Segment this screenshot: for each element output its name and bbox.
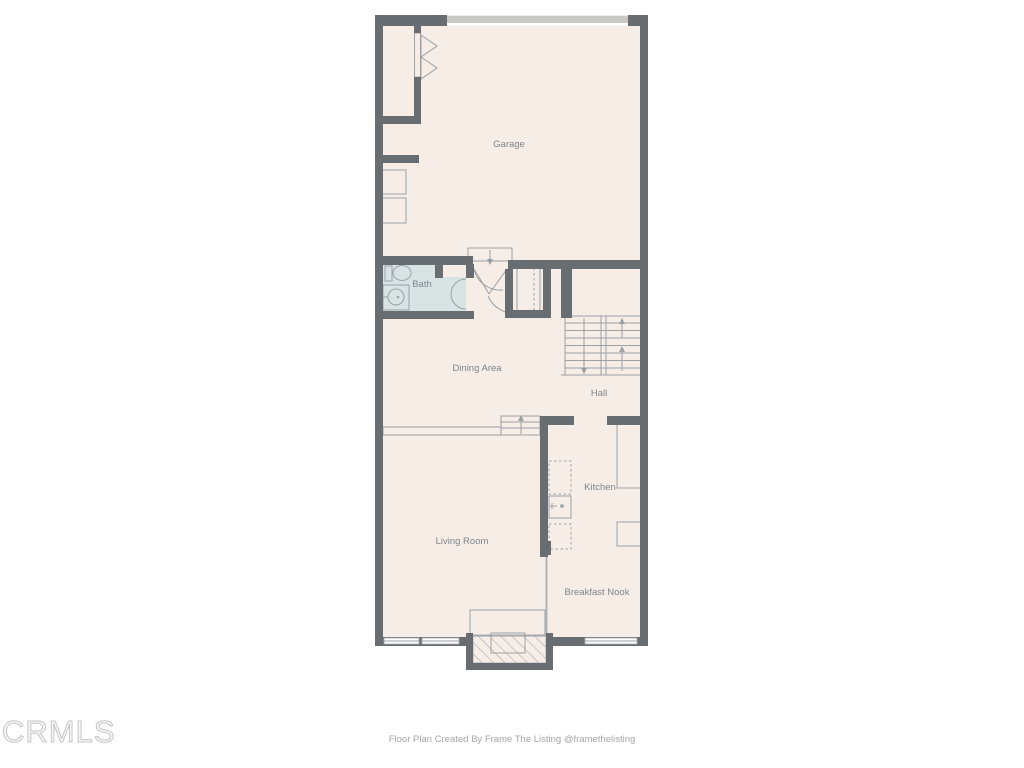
room-label-kitchen: Kitchen xyxy=(584,482,616,493)
room-label-breakfast-nook: Breakfast Nook xyxy=(565,587,630,598)
floor-plan-page: Garage Bath Dining Area Hall Kitchen Liv… xyxy=(0,0,1024,768)
room-label-dining-area: Dining Area xyxy=(452,363,502,374)
room-label-bath: Bath xyxy=(412,279,432,290)
washer-icon xyxy=(381,170,406,194)
footer-credit: Floor Plan Created By Frame The Listing … xyxy=(0,734,1024,745)
garage-door-icon xyxy=(447,16,628,26)
room-label-hall: Hall xyxy=(591,388,607,399)
half-wall-ledge xyxy=(383,427,501,435)
fireplace-icon xyxy=(470,610,546,663)
room-divider-line xyxy=(546,555,548,640)
hearth xyxy=(470,610,545,636)
closet-door-panel xyxy=(415,33,421,77)
room-label-garage: Garage xyxy=(493,139,525,150)
room-label-living-room: Living Room xyxy=(436,536,489,547)
floor-plan: Garage Bath Dining Area Hall Kitchen Liv… xyxy=(0,0,1024,768)
dryer-icon xyxy=(381,198,406,223)
